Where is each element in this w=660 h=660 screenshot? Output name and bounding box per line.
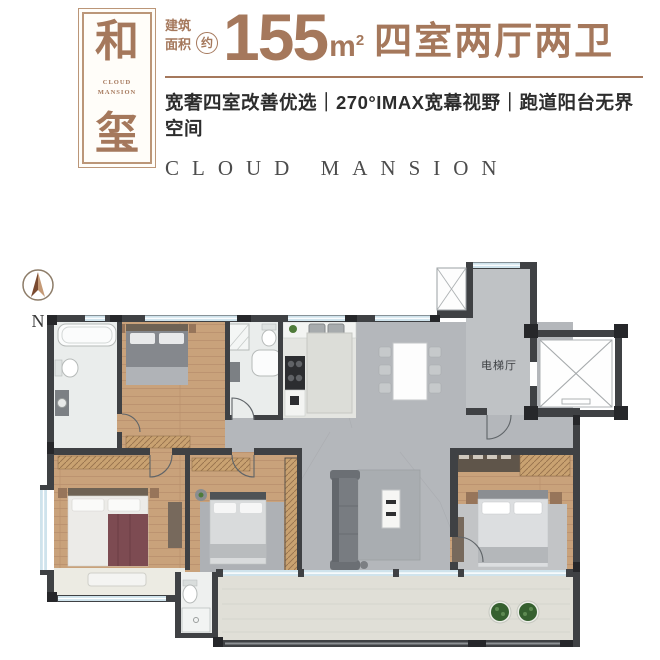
- floorplan-svg: N: [0, 252, 660, 660]
- dining-table: [379, 343, 441, 400]
- badge-subtitle-line1: CLOUD: [98, 78, 136, 88]
- area-unit-sup: 2: [356, 32, 364, 49]
- compass-north-label: N: [32, 311, 45, 331]
- tagline: 宽奢四室改善优选｜270°IMAX宽幕视野｜跑道阳台无界空间: [165, 89, 643, 141]
- stove: [285, 356, 305, 390]
- wardrobe-bedroom-2-top: [192, 458, 250, 471]
- plant-1: [489, 601, 511, 623]
- vanity-1: [55, 390, 69, 416]
- brand-badge: 和 CLOUD MANSION 玺: [78, 8, 156, 168]
- bay-window-bench: [88, 573, 146, 586]
- brand-name: CLOUD MANSION: [165, 156, 643, 181]
- kitchen-island: [307, 333, 352, 413]
- badge-subtitle: CLOUD MANSION: [98, 78, 136, 99]
- bathtub-1: [58, 324, 116, 346]
- living-room-set: [330, 470, 420, 570]
- elevator-door-opening: [530, 362, 537, 386]
- kitchen-lower-counter: [285, 390, 305, 416]
- toilet-1: [55, 359, 78, 377]
- room-count-title: 四室两厅两卫: [374, 23, 614, 61]
- toilet-3: [183, 580, 197, 603]
- area-value: 155: [223, 10, 327, 64]
- header-divider: [165, 76, 643, 78]
- poster: 和 CLOUD MANSION 玺 建筑 面积 约 155 m2 四室两厅两卫 …: [0, 0, 660, 660]
- wardrobe-bedroom-1: [58, 456, 150, 469]
- shower-3: [182, 608, 210, 632]
- toilet-2: [262, 324, 276, 346]
- area-unit: m2: [329, 32, 364, 62]
- floorplan: N: [0, 252, 660, 660]
- bed-top-bedroom: [118, 324, 196, 385]
- utility-shaft: [437, 268, 466, 310]
- badge-character-bottom: 玺: [95, 112, 139, 156]
- elevator-hall-label: 电梯厅: [481, 359, 517, 372]
- badge-character-top: 和: [95, 20, 139, 64]
- wardrobe-bedroom-2-side: [285, 458, 299, 572]
- brand-badge-frame: 和 CLOUD MANSION 玺: [82, 12, 152, 164]
- plant-2: [517, 601, 539, 623]
- tv-console: [382, 490, 400, 528]
- area-prefix-line2: 面积: [165, 36, 191, 55]
- area-prefix-line1: 建筑: [165, 17, 191, 36]
- area-prefix: 建筑 面积: [165, 17, 191, 55]
- wardrobe-top-bedroom: [126, 436, 190, 448]
- area-row: 建筑 面积 约 155 m2 四室两厅两卫: [165, 10, 643, 64]
- header: 建筑 面积 约 155 m2 四室两厅两卫 宽奢四室改善优选｜270°IMAX宽…: [165, 10, 643, 181]
- shower-2: [227, 324, 249, 350]
- bed-bedroom-1: [58, 488, 159, 566]
- desk-bedroom-1: [168, 502, 182, 548]
- badge-subtitle-line2: MANSION: [98, 88, 136, 98]
- bathtub-2: [252, 350, 281, 376]
- approx-circle: 约: [196, 32, 218, 54]
